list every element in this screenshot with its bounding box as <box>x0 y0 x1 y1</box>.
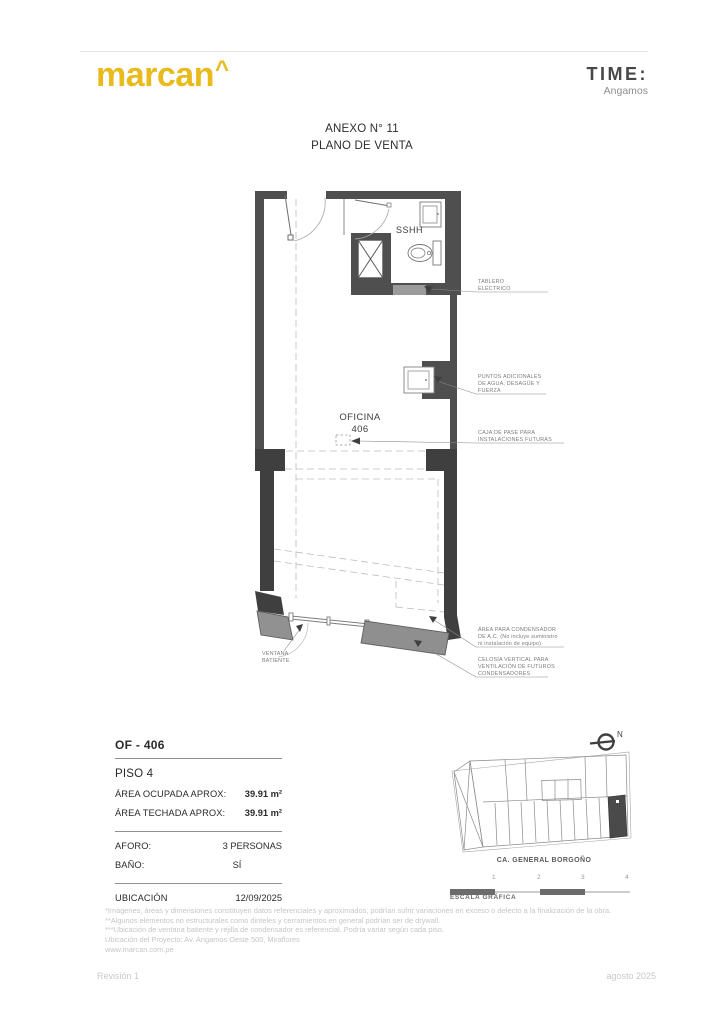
info-divider-2 <box>115 831 282 832</box>
disclaimer-notes: *Imágenes, áreas y dimensiones constituy… <box>105 906 665 955</box>
shaft <box>358 240 383 278</box>
condensador-label-3: ni instalación de equipo) <box>478 641 541 647</box>
sink <box>420 202 441 227</box>
revision-label: Revisión 1 <box>97 971 139 981</box>
room-number-label: 406 <box>351 424 368 435</box>
plan-sheet-page: marcan^ TIME: Angamos ANEXO N° 11 PLANO … <box>0 0 724 1024</box>
puntos-label-2: DE AGUA, DESAGÜE Y <box>478 380 540 387</box>
scale-numbers: 1 2 3 4 <box>450 874 630 883</box>
ubicacion-row: UBICACIÓN 12/09/2025 <box>115 893 282 903</box>
floor-label: PISO 4 <box>115 768 282 780</box>
bathroom-label: SSHH <box>396 225 423 235</box>
tablero-label-2: ELÉCTRICO <box>478 285 511 292</box>
header-divider <box>80 51 648 52</box>
celosia-label-3: CONDENSADORES <box>478 671 531 677</box>
caja-de-pase-box <box>336 435 350 445</box>
annotation-leaders <box>284 289 564 677</box>
wet-points-box <box>404 367 434 393</box>
aforo-row: AFORO: 3 PERSONAS <box>115 841 282 851</box>
floor-plan: OFICINA 406 SSHH TABLERO ELÉCTRICO PUNTO… <box>248 183 578 703</box>
area-ocupada-row: ÁREA OCUPADA APROX: 39.91 m² <box>115 789 282 799</box>
puntos-label-1: PUNTOS ADICIONALES <box>478 374 542 380</box>
caja-label-1: CAJA DE PASE PARA <box>478 430 535 436</box>
note-line-2: **Algunos elementos no estructurales com… <box>105 916 665 926</box>
scale-number-4: 4 <box>625 874 629 881</box>
ventana-label-2: BATIENTE <box>262 658 290 664</box>
walls-lower <box>255 449 461 640</box>
puntos-label-3: FUERZA <box>478 388 501 394</box>
celosia-label-1: CELOSÍA VERTICAL PARA <box>478 656 549 663</box>
louver-panel-right <box>361 621 449 655</box>
time-logo-subtitle: Angamos <box>530 85 648 97</box>
aforo-label: AFORO: <box>115 841 151 851</box>
north-letter: N <box>617 730 623 739</box>
scale-number-2: 2 <box>537 874 541 881</box>
caja-label-2: INSTALACIONES FUTURAS <box>478 437 552 443</box>
celosia-label-2: VENTILACIÓN DE FUTUROS <box>478 663 555 670</box>
street-label: CA. GENERAL BORGOÑO <box>446 857 642 864</box>
unit-code: OF - 406 <box>115 738 282 752</box>
key-plan-building <box>454 755 628 850</box>
floor-plan-svg: OFICINA 406 SSHH TABLERO ELÉCTRICO PUNTO… <box>248 183 578 703</box>
marcan-logo-text: marcan <box>96 56 214 94</box>
date-label: agosto 2025 <box>606 971 656 981</box>
scale-label: ESCALA GRÁFICA <box>450 894 516 901</box>
marcan-caret-icon: ^ <box>215 56 229 83</box>
annex-title: ANEXO N° 11 <box>0 121 724 138</box>
info-divider-1 <box>115 758 282 759</box>
note-line-5: www.marcan.com.pe <box>105 945 665 955</box>
louver-panel-left <box>257 611 293 640</box>
area-ocupada-value: 39.91 m² <box>245 789 282 799</box>
note-line-4: Ubicación del Proyecto: Av. Angamos Oest… <box>105 935 665 945</box>
room-name-label: OFICINA <box>339 412 381 423</box>
condensador-label-2: DE A.C. (No incluye suministro <box>478 634 558 640</box>
toilet <box>408 241 441 265</box>
scale-number-3: 3 <box>581 874 585 881</box>
entry-door <box>285 195 325 241</box>
time-angamos-logo: TIME: Angamos <box>530 64 648 97</box>
area-techada-label: ÁREA TECHADA APROX: <box>115 808 225 818</box>
bano-row: BAÑO: SÍ <box>115 860 282 870</box>
ubicacion-value: 12/09/2025 <box>235 893 282 903</box>
unit-info-panel: OF - 406 PISO 4 ÁREA OCUPADA APROX: 39.9… <box>115 738 282 903</box>
marcan-logo: marcan^ <box>96 56 227 95</box>
bano-label: BAÑO: <box>115 860 144 870</box>
document-title: ANEXO N° 11 PLANO DE VENTA <box>0 121 724 155</box>
area-ocupada-label: ÁREA OCUPADA APROX: <box>115 789 226 799</box>
note-line-3: ***Ubicación de ventana batiente y rejil… <box>105 925 665 935</box>
area-techada-value: 39.91 m² <box>245 808 282 818</box>
highlighted-unit-mark <box>616 800 619 803</box>
note-line-1: *Imágenes, áreas y dimensiones constituy… <box>105 906 665 916</box>
north-bar-icon <box>590 741 615 744</box>
time-logo-text: TIME: <box>530 64 648 85</box>
annotation-arrowheads <box>296 286 442 647</box>
tablero-electrico-segment <box>393 285 426 295</box>
area-techada-row: ÁREA TECHADA APROX: 39.91 m² <box>115 808 282 818</box>
ventana-label-1: VENTANA <box>262 651 289 657</box>
key-plan <box>450 748 640 854</box>
info-divider-3 <box>115 883 282 884</box>
bano-value: SÍ <box>192 860 282 870</box>
aforo-value: 3 PERSONAS <box>223 841 282 851</box>
condensador-label-1: ÁREA PARA CONDENSADOR <box>478 626 556 633</box>
plan-title: PLANO DE VENTA <box>0 138 724 155</box>
tablero-label-1: TABLERO <box>478 279 504 285</box>
ubicacion-label: UBICACIÓN <box>115 893 168 903</box>
scale-number-1: 1 <box>492 874 496 881</box>
